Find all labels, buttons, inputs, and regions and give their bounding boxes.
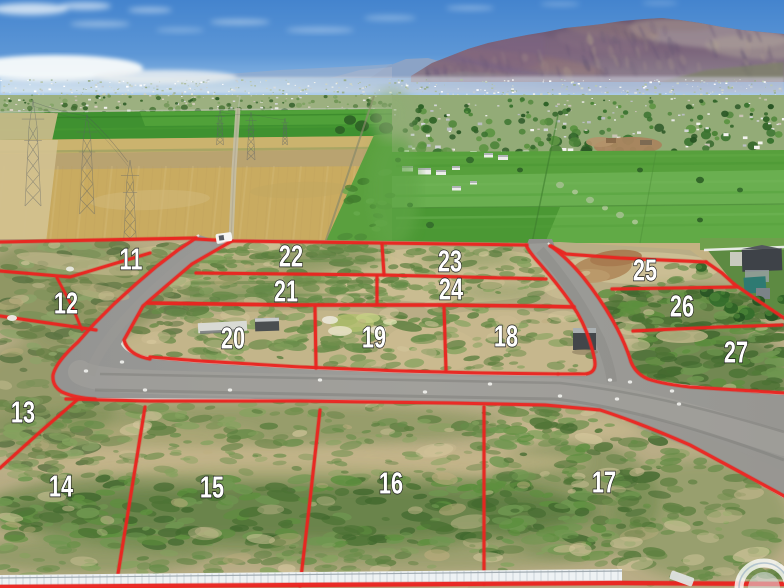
svg-text:22: 22 xyxy=(279,239,303,274)
svg-text:25: 25 xyxy=(633,253,657,288)
svg-text:27: 27 xyxy=(724,335,748,370)
svg-text:12: 12 xyxy=(54,286,78,321)
svg-text:17: 17 xyxy=(592,465,616,500)
svg-text:20: 20 xyxy=(221,321,245,356)
svg-text:16: 16 xyxy=(379,466,403,501)
svg-text:11: 11 xyxy=(120,242,143,277)
svg-text:19: 19 xyxy=(362,320,386,355)
svg-text:15: 15 xyxy=(200,470,224,505)
svg-text:26: 26 xyxy=(670,289,694,324)
svg-text:14: 14 xyxy=(49,469,73,504)
svg-text:21: 21 xyxy=(274,274,298,309)
svg-text:24: 24 xyxy=(439,272,463,307)
svg-text:13: 13 xyxy=(11,395,35,430)
svg-text:18: 18 xyxy=(494,319,518,354)
